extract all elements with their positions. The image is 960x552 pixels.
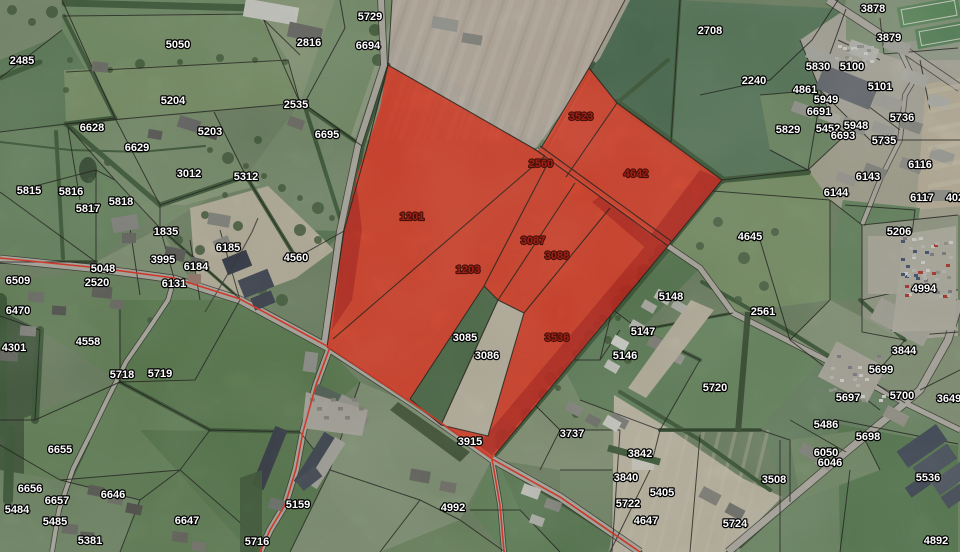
svg-text:5817: 5817: [76, 203, 100, 215]
svg-text:6117: 6117: [910, 192, 934, 204]
svg-text:5716: 5716: [245, 536, 269, 548]
svg-text:5949: 5949: [814, 94, 838, 106]
svg-text:2240: 2240: [742, 75, 766, 87]
svg-text:5718: 5718: [110, 369, 134, 381]
svg-text:5204: 5204: [161, 95, 186, 107]
svg-text:6629: 6629: [125, 142, 149, 154]
svg-text:5815: 5815: [17, 185, 41, 197]
svg-text:6184: 6184: [184, 261, 209, 273]
svg-text:5697: 5697: [836, 392, 860, 404]
svg-text:5736: 5736: [890, 112, 914, 124]
svg-text:6131: 6131: [162, 278, 186, 290]
svg-text:2485: 2485: [10, 55, 34, 67]
svg-text:4992: 4992: [441, 502, 465, 514]
svg-text:3737: 3737: [560, 428, 584, 440]
svg-text:2560: 2560: [529, 158, 553, 170]
svg-text:4994: 4994: [912, 283, 937, 295]
svg-text:4645: 4645: [738, 231, 762, 243]
svg-text:5724: 5724: [723, 518, 748, 530]
svg-text:6470: 6470: [6, 305, 30, 317]
svg-text:3844: 3844: [892, 345, 917, 357]
svg-text:5816: 5816: [59, 186, 83, 198]
svg-text:5536: 5536: [916, 472, 940, 484]
svg-text:5203: 5203: [198, 126, 222, 138]
svg-text:3649: 3649: [937, 393, 960, 405]
svg-text:5048: 5048: [91, 263, 115, 275]
svg-text:5484: 5484: [5, 504, 30, 516]
svg-text:1203: 1203: [456, 264, 480, 276]
svg-text:2535: 2535: [284, 99, 308, 111]
svg-text:5719: 5719: [148, 368, 172, 380]
svg-text:5735: 5735: [872, 135, 896, 147]
svg-text:5159: 5159: [286, 499, 310, 511]
svg-text:6646: 6646: [101, 489, 125, 501]
svg-text:5722: 5722: [616, 498, 640, 510]
svg-text:3012: 3012: [177, 168, 201, 180]
svg-text:3508: 3508: [762, 474, 786, 486]
svg-text:6185: 6185: [216, 242, 240, 254]
svg-text:3915: 3915: [458, 436, 482, 448]
svg-text:3088: 3088: [545, 250, 569, 262]
svg-text:5101: 5101: [868, 81, 892, 93]
svg-text:5148: 5148: [659, 291, 683, 303]
svg-text:3840: 3840: [614, 472, 638, 484]
svg-text:6695: 6695: [315, 129, 339, 141]
svg-text:5206: 5206: [887, 226, 911, 238]
svg-text:6656: 6656: [18, 483, 42, 495]
svg-text:5312: 5312: [234, 171, 258, 183]
svg-text:6657: 6657: [45, 495, 69, 507]
svg-text:4560: 4560: [284, 252, 308, 264]
svg-text:4647: 4647: [634, 515, 658, 527]
svg-text:2708: 2708: [698, 25, 722, 37]
svg-text:6509: 6509: [6, 275, 30, 287]
svg-text:6628: 6628: [80, 122, 104, 134]
svg-text:6694: 6694: [356, 40, 381, 52]
svg-text:3085: 3085: [453, 332, 477, 344]
svg-text:6693: 6693: [831, 130, 855, 142]
svg-text:6143: 6143: [856, 171, 880, 183]
svg-text:1201: 1201: [400, 211, 424, 223]
svg-text:6647: 6647: [175, 515, 199, 527]
svg-text:3087: 3087: [521, 235, 545, 247]
svg-text:3842: 3842: [628, 448, 652, 460]
svg-text:402: 402: [946, 192, 960, 204]
svg-text:5818: 5818: [109, 196, 133, 208]
svg-text:5829: 5829: [776, 124, 800, 136]
svg-text:5100: 5100: [840, 61, 864, 73]
svg-text:6046: 6046: [818, 457, 842, 469]
svg-text:5729: 5729: [358, 11, 382, 23]
svg-text:3523: 3523: [569, 111, 593, 123]
svg-text:5830: 5830: [806, 61, 830, 73]
svg-text:3879: 3879: [877, 32, 901, 44]
svg-text:5147: 5147: [631, 326, 655, 338]
svg-text:4892: 4892: [924, 535, 948, 547]
svg-text:2561: 2561: [751, 306, 775, 318]
svg-text:4642: 4642: [624, 168, 648, 180]
svg-text:5699: 5699: [869, 364, 893, 376]
svg-text:2520: 2520: [85, 277, 109, 289]
svg-text:3086: 3086: [475, 350, 499, 362]
svg-text:5700: 5700: [890, 390, 914, 402]
svg-text:4301: 4301: [2, 342, 26, 354]
svg-text:3536: 3536: [545, 332, 569, 344]
svg-text:5405: 5405: [650, 487, 674, 499]
svg-text:5720: 5720: [703, 382, 727, 394]
svg-text:5485: 5485: [43, 516, 67, 528]
svg-text:2816: 2816: [297, 37, 321, 49]
svg-text:1835: 1835: [154, 226, 178, 238]
svg-text:5050: 5050: [166, 39, 190, 51]
svg-text:3995: 3995: [151, 254, 175, 266]
svg-text:5381: 5381: [78, 535, 102, 547]
svg-text:6655: 6655: [48, 444, 72, 456]
svg-text:5486: 5486: [814, 419, 838, 431]
svg-text:4558: 4558: [76, 336, 100, 348]
svg-text:6691: 6691: [807, 106, 831, 118]
svg-text:5698: 5698: [856, 431, 880, 443]
svg-text:3878: 3878: [861, 3, 885, 15]
svg-text:5146: 5146: [613, 350, 637, 362]
svg-text:6144: 6144: [824, 187, 849, 199]
svg-text:6116: 6116: [908, 159, 932, 171]
